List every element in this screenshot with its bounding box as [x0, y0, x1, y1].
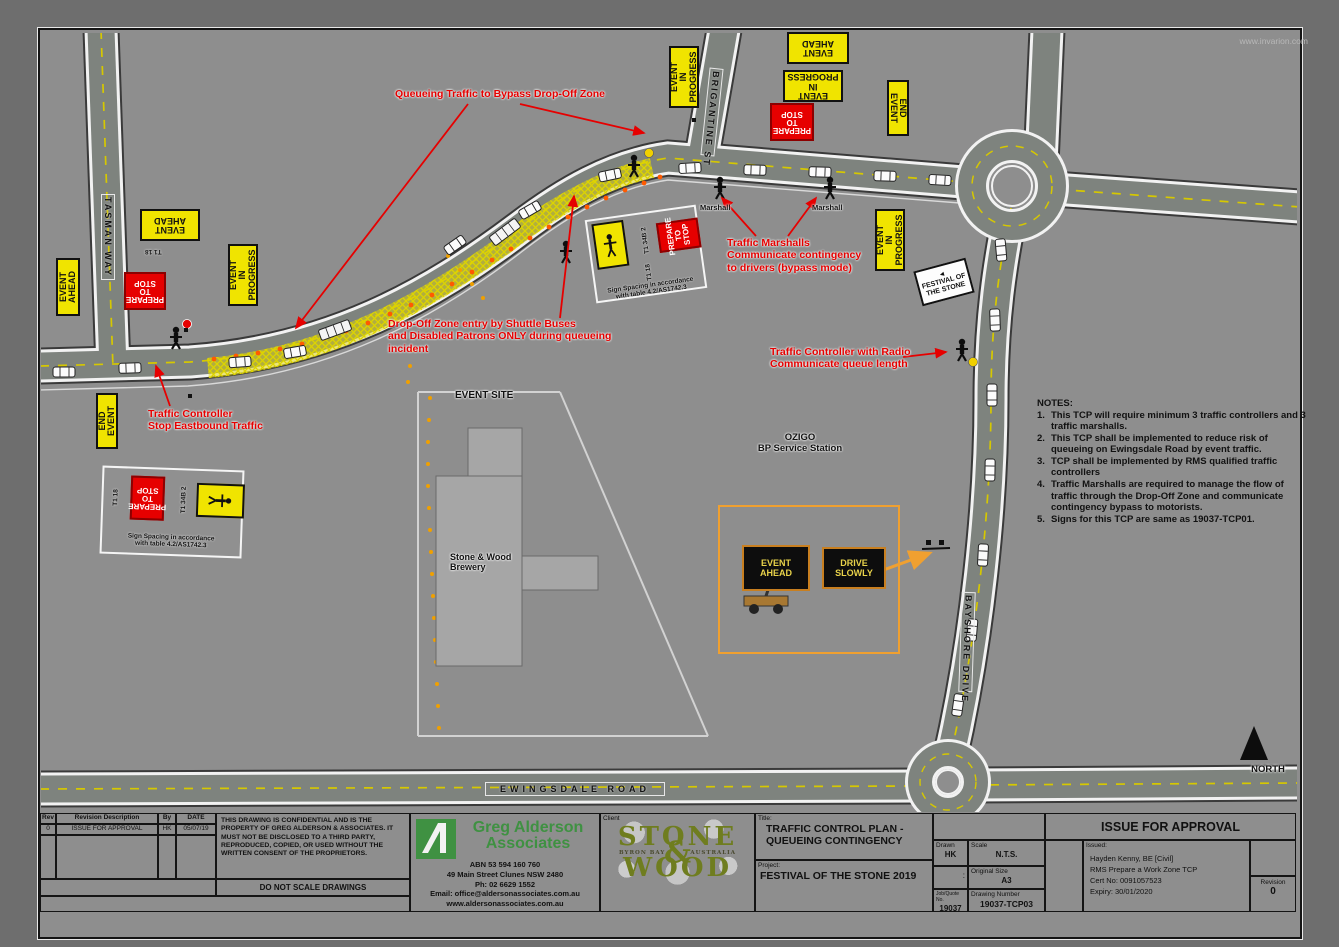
- issued-label: Issued:: [1084, 841, 1249, 850]
- note-text: This TCP shall be implemented to reduce …: [1051, 433, 1311, 456]
- revision-label: Revision: [1251, 877, 1295, 886]
- watermark-url: www.invarion.com: [1190, 36, 1308, 46]
- revtable-header-by: By: [158, 813, 176, 824]
- original-size-label: Original Size: [969, 867, 1044, 876]
- job-number-label: Job/Quote No.: [934, 890, 967, 904]
- vms-line: SLOWLY: [835, 568, 873, 578]
- sign-line: AHEAD: [154, 216, 186, 225]
- vms-detail-box: EVENT AHEAD DRIVE SLOWLY: [718, 505, 900, 654]
- revtable-empty: [40, 835, 56, 879]
- annotation-marshalls: Traffic Marshalls Communicate contingenc…: [727, 237, 861, 274]
- revision-empty-cell: [1250, 840, 1296, 876]
- sign-line: PROGRESS: [689, 52, 698, 103]
- client-cell: Client STONE BYRON BAY AUSTRALIA WOOD &: [600, 813, 755, 912]
- annotation-dropoff: Drop-Off Zone entry by Shuttle Buses and…: [388, 318, 611, 355]
- issued-name: Hayden Kenny, BE [Civil]: [1090, 854, 1243, 865]
- drawn-value: HK: [934, 850, 967, 859]
- annotation-dropoff-l2: and Disabled Patrons ONLY during queuein…: [388, 330, 611, 342]
- sign-line: EVENT: [155, 225, 185, 234]
- revtable-cell-rev: 0: [40, 824, 56, 835]
- sw-logo-ampersand: &: [664, 835, 691, 870]
- sign-event-in-progress: EVENT IN PROGRESS: [783, 70, 843, 102]
- note-number: 2.: [1037, 433, 1051, 456]
- note-item: 4. Traffic Marshalls are required to man…: [1037, 479, 1311, 514]
- scale-value: N.T.S.: [969, 850, 1044, 859]
- note-number: 4.: [1037, 479, 1051, 514]
- sign-cluster-west: T1 18 PREPARE TO STOP T1 34B 2 Sign Spac…: [100, 466, 245, 559]
- sign-code-t1-18: T1 18: [145, 248, 162, 255]
- revtable-cell-date: 05/07/19: [176, 824, 216, 835]
- note-text: Traffic Marshalls are required to manage…: [1051, 479, 1311, 514]
- company-phone: Ph: 02 6629 1552: [411, 880, 599, 890]
- issued-details: Hayden Kenny, BE [Civil] RMS Prepare a W…: [1084, 850, 1249, 898]
- sign-line: EVENT: [798, 91, 828, 100]
- notes-heading: NOTES:: [1037, 398, 1311, 410]
- sign-line: TO: [142, 494, 153, 503]
- revtable-empty-band: [40, 879, 216, 896]
- company-cell: Greg Alderson Associates ABN 53 594 160 …: [410, 813, 600, 912]
- job-number-value: 19037: [934, 904, 967, 913]
- traffic-controller-symbol-icon: [207, 492, 234, 511]
- sign-event-ahead: EVENT AHEAD: [787, 32, 849, 64]
- revtable-cell-by: HK: [158, 824, 176, 835]
- annotation-tc-stop: Traffic Controller Stop Eastbound Traffi…: [148, 408, 263, 433]
- annotation-dropoff-l1: Drop-Off Zone entry by Shuttle Buses: [388, 318, 611, 330]
- annotation-dropoff-l3: incident: [388, 343, 611, 355]
- original-size-value: A3: [969, 876, 1044, 885]
- company-address: 49 Main Street Clunes NSW 2480: [411, 870, 599, 880]
- sign-prepare-to-stop: PREPARE TO STOP: [656, 217, 702, 253]
- sign-line: AHEAD: [68, 271, 77, 303]
- sign-line: EVENT: [107, 406, 116, 436]
- vms-line: DRIVE: [840, 558, 868, 568]
- company-name-line1: Greg Alderson: [459, 820, 597, 836]
- note-text: Signs for this TCP are same as 19037-TCP…: [1051, 514, 1255, 526]
- note-text: TCP shall be implemented by RMS qualifie…: [1051, 456, 1311, 479]
- project-name: FESTIVAL OF THE STONE 2019: [756, 870, 932, 882]
- company-details: ABN 53 594 160 760 49 Main Street Clunes…: [411, 860, 599, 909]
- company-abn: ABN 53 594 160 760: [411, 860, 599, 870]
- sign-line: EVENT: [889, 93, 898, 123]
- sign-code-t1-18: T1 18: [112, 489, 120, 506]
- company-name: Greg Alderson Associates: [459, 820, 597, 852]
- sign-line: PREPARE: [773, 126, 811, 134]
- sign-cluster-dropoff: T1 34B 2 PREPARE TO STOP T1 18 Sign Spac…: [585, 205, 708, 304]
- issued-cert-number: Cert No: 0091057523: [1090, 876, 1243, 887]
- ozigo-label: OZIGO BP Service Station: [745, 432, 855, 454]
- marshall-label-2: Marshall: [812, 203, 842, 212]
- drawn-label: Drawn: [934, 841, 967, 850]
- annotation-marshalls-l1: Traffic Marshalls: [727, 237, 861, 249]
- sign-traffic-controller-symbolic: [196, 483, 245, 519]
- note-number: 3.: [1037, 456, 1051, 479]
- north-arrow-icon: [1240, 726, 1268, 760]
- sign-traffic-controller-symbolic: [591, 220, 629, 270]
- project-cell: Project: FESTIVAL OF THE STONE 2019: [755, 860, 933, 912]
- sign-event-ahead: EVENT AHEAD: [56, 258, 80, 316]
- stone-and-wood-logo: STONE BYRON BAY AUSTRALIA WOOD &: [611, 825, 744, 880]
- north-label: NORTH: [1228, 764, 1308, 775]
- scale-cell: Scale N.T.S.: [968, 840, 1045, 866]
- sign-code-t1-18: T1 18: [644, 264, 653, 281]
- note-item: 2. This TCP shall be implemented to redu…: [1037, 433, 1311, 456]
- sign-line: PROGRESS: [895, 215, 904, 266]
- original-size-cell: Original Size A3: [968, 866, 1045, 889]
- sign-line: STOP: [781, 110, 803, 118]
- sign-event-in-progress: EVENT IN PROGRESS: [875, 209, 905, 271]
- company-name-line2: Associates: [459, 836, 597, 852]
- disclaimer-text: THIS DRAWING IS CONFIDENTIAL AND IS THE …: [217, 814, 409, 861]
- annotation-tc-radio-l2: Communicate queue length: [770, 358, 911, 370]
- sign-line: PREPARE: [126, 295, 164, 303]
- notes-block: NOTES: 1. This TCP will require minimum …: [1037, 398, 1311, 525]
- revision-value: 0: [1251, 886, 1295, 897]
- note-item: 1. This TCP will require minimum 3 traff…: [1037, 410, 1311, 433]
- sign-line: PROGRESS: [248, 250, 257, 301]
- annotation-marshalls-l3: to drivers (bypass mode): [727, 262, 861, 274]
- company-email: Email: office@aldersonassociates.com.au: [411, 889, 599, 899]
- revtable-empty: [176, 835, 216, 879]
- brewery-label-line2: Brewery: [450, 562, 511, 572]
- vms-board-drive-slowly: DRIVE SLOWLY: [822, 547, 886, 589]
- greg-alderson-logo: [416, 819, 456, 859]
- sign-line: IN: [809, 81, 818, 90]
- note-item: 5. Signs for this TCP are same as 19037-…: [1037, 514, 1311, 526]
- ga-logo-a-icon: [416, 819, 456, 859]
- title-cell: Title: TRAFFIC CONTROL PLAN - QUEUEING C…: [755, 813, 933, 860]
- vms-line: AHEAD: [760, 568, 792, 578]
- sign-line: PROGRESS: [788, 72, 839, 81]
- traffic-controller-symbol-icon: [599, 231, 620, 259]
- annotation-tc-radio: Traffic Controller with Radio Communicat…: [770, 346, 911, 371]
- sign-event-ahead: EVENT AHEAD: [140, 209, 200, 241]
- annotation-tc-radio-l1: Traffic Controller with Radio: [770, 346, 911, 358]
- drawn-cell: Drawn HK: [933, 840, 968, 866]
- sign-line: STOP: [134, 279, 156, 287]
- ozigo-label-line1: OZIGO: [745, 432, 855, 443]
- drawing-number-value: 19037-TCP03: [969, 899, 1044, 909]
- sign-code-t1-34b: T1 34B 2: [640, 226, 651, 253]
- brewery-label-line1: Stone & Wood: [450, 552, 511, 562]
- title-label: Title:: [756, 814, 932, 823]
- issue-status-banner: ISSUE FOR APPROVAL: [1045, 813, 1296, 840]
- brewery-label: Stone & Wood Brewery: [450, 552, 511, 572]
- annotation-tc-stop-l2: Stop Eastbound Traffic: [148, 420, 263, 432]
- event-site-label: EVENT SITE: [455, 390, 513, 401]
- project-label: Project:: [756, 861, 932, 870]
- sign-spacing-note: Sign Spacing in accordance with table 4.…: [105, 532, 237, 551]
- revtable-header-desc: Revision Description: [56, 813, 158, 824]
- bp-station-label: BP Service Station: [745, 443, 855, 454]
- sign-end-event: END EVENT: [887, 80, 909, 136]
- sign-line: PREPARE: [128, 502, 166, 511]
- disclaimer-cell: THIS DRAWING IS CONFIDENTIAL AND IS THE …: [216, 813, 410, 879]
- sign-event-in-progress: EVENT IN PROGRESS: [669, 46, 699, 108]
- revtable-header-date: DATE: [176, 813, 216, 824]
- sign-line: STOP: [682, 223, 693, 246]
- revtable-cell-desc: ISSUE FOR APPROVAL: [56, 824, 158, 835]
- sign-prepare-to-stop: PREPARE TO STOP: [130, 476, 166, 521]
- annotation-marshalls-l2: Communicate contingency: [727, 249, 861, 261]
- traffic-control-plan-sheet: TASMAN WAY BRIGANTINE ST BAYSHORE DRIVE …: [0, 0, 1339, 947]
- note-number: 1.: [1037, 410, 1051, 433]
- checked-cell: :: [933, 866, 968, 889]
- sign-line: AHEAD: [802, 39, 834, 48]
- annotation-tc-stop-l1: Traffic Controller: [148, 408, 263, 420]
- sign-prepare-to-stop: PREPARE TO STOP: [770, 103, 814, 141]
- sign-event-in-progress: EVENT IN PROGRESS: [228, 244, 258, 306]
- revision-cell: Revision 0: [1250, 876, 1296, 912]
- issued-cell: Issued: Hayden Kenny, BE [Civil] RMS Pre…: [1083, 840, 1250, 912]
- note-item: 3. TCP shall be implemented by RMS quali…: [1037, 456, 1311, 479]
- vms-board-event-ahead: EVENT AHEAD: [742, 545, 810, 591]
- sign-line: END: [898, 98, 907, 117]
- titleblock-empty-strip: [40, 896, 410, 912]
- revtable-empty: [158, 835, 176, 879]
- annotation-queueing: Queueing Traffic to Bypass Drop-Off Zone: [395, 88, 605, 100]
- drawing-title-line2: QUEUEING CONTINGENCY: [756, 835, 932, 847]
- road-label-tasman-way: TASMAN WAY: [101, 194, 115, 280]
- sign-code-t1-34b: T1 34B 2: [180, 486, 188, 513]
- marshall-label-1: Marshall: [700, 203, 730, 212]
- approval-empty-cell: [1045, 840, 1083, 912]
- revtable-header-rev: Rev: [40, 813, 56, 824]
- sign-end-event: END EVENT: [96, 393, 118, 449]
- drawing-title-line1: TRAFFIC CONTROL PLAN -: [756, 823, 932, 835]
- note-text: This TCP will require minimum 3 traffic …: [1051, 410, 1311, 433]
- job-number-cell: Job/Quote No. 19037: [933, 889, 968, 912]
- issued-expiry: Expiry: 30/01/2020: [1090, 887, 1243, 898]
- scale-label: Scale: [969, 841, 1044, 850]
- sign-prepare-to-stop: PREPARE TO STOP: [124, 272, 166, 310]
- drawing-number-cell: Drawing Number 19037-TCP03: [968, 889, 1045, 912]
- sign-line: STOP: [137, 486, 159, 495]
- issued-qualification: RMS Prepare a Work Zone TCP: [1090, 865, 1243, 876]
- sign-line: EVENT: [803, 48, 833, 57]
- drawing-number-label: Drawing Number: [969, 890, 1044, 899]
- company-website: www.aldersonassociates.com.au: [411, 899, 599, 909]
- note-number: 5.: [1037, 514, 1051, 526]
- vms-line: EVENT: [761, 558, 791, 568]
- fields-empty-cell: [933, 813, 1045, 840]
- road-label-ewingsdale-road: EWINGSDALE ROAD: [485, 782, 665, 796]
- revtable-empty: [56, 835, 158, 879]
- sign-line: TO: [787, 118, 798, 126]
- checked-colon: :: [934, 867, 967, 884]
- do-not-scale-box: DO NOT SCALE DRAWINGS: [216, 879, 410, 896]
- sign-line: TO: [140, 287, 151, 295]
